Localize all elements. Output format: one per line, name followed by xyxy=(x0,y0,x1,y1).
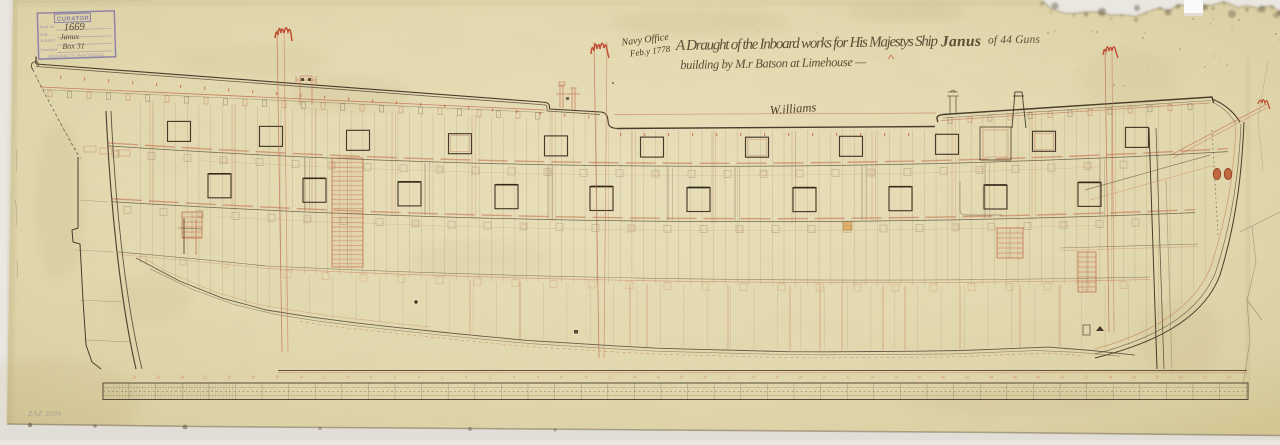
svg-text:SUBJECT: SUBJECT xyxy=(40,39,56,43)
svg-text:12: 12 xyxy=(608,375,612,380)
svg-text:64: 64 xyxy=(1227,375,1231,380)
svg-text:2: 2 xyxy=(489,375,491,380)
svg-text:54: 54 xyxy=(1108,375,1112,380)
svg-text:4: 4 xyxy=(513,375,515,380)
svg-text:Box 31: Box 31 xyxy=(62,41,85,51)
svg-text:12: 12 xyxy=(322,375,326,380)
svg-text:Janus: Janus xyxy=(940,33,981,51)
svg-text:22: 22 xyxy=(203,375,207,380)
svg-text:ZAZ 2090: ZAZ 2090 xyxy=(28,409,62,418)
svg-text:22: 22 xyxy=(727,375,731,380)
svg-text:SHIP ……: SHIP …… xyxy=(40,33,56,37)
svg-text:14: 14 xyxy=(299,375,303,380)
svg-text:24: 24 xyxy=(751,375,755,380)
svg-text:Regd. No.: Regd. No. xyxy=(40,25,55,29)
svg-text:42: 42 xyxy=(965,375,969,380)
svg-text:52: 52 xyxy=(1084,375,1088,380)
svg-text:Janus: Janus xyxy=(60,32,79,42)
svg-text:4: 4 xyxy=(418,375,420,380)
svg-text:24: 24 xyxy=(180,375,184,380)
svg-text:34: 34 xyxy=(870,375,874,380)
svg-text:32: 32 xyxy=(846,375,850,380)
svg-text:Press Mark: Press Mark xyxy=(40,48,58,53)
svg-text:44: 44 xyxy=(989,375,993,380)
svg-text:2: 2 xyxy=(441,375,443,380)
svg-text:62: 62 xyxy=(1203,375,1207,380)
svg-text:of 44 Guns: of 44 Guns xyxy=(988,34,1041,47)
svg-text:14: 14 xyxy=(632,375,636,380)
